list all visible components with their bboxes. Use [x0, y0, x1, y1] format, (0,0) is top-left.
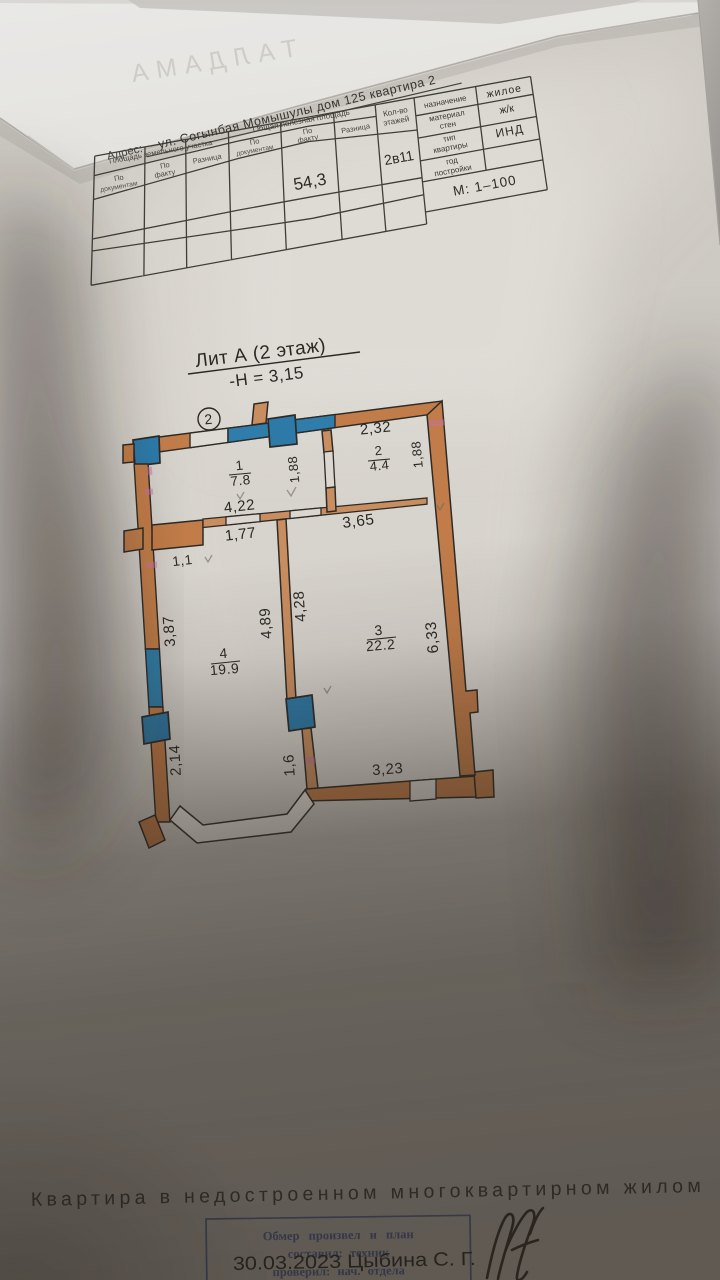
- svg-text:Обмер произвел и план: Обмер произвел и план: [263, 1227, 414, 1243]
- svg-text:Квартира в недостроенном много: Квартира в недостроенном многоквартирном…: [31, 1175, 703, 1211]
- svg-text:30.03.2023 Цыбина С. Г.: 30.03.2023 Цыбина С. Г.: [233, 1249, 476, 1275]
